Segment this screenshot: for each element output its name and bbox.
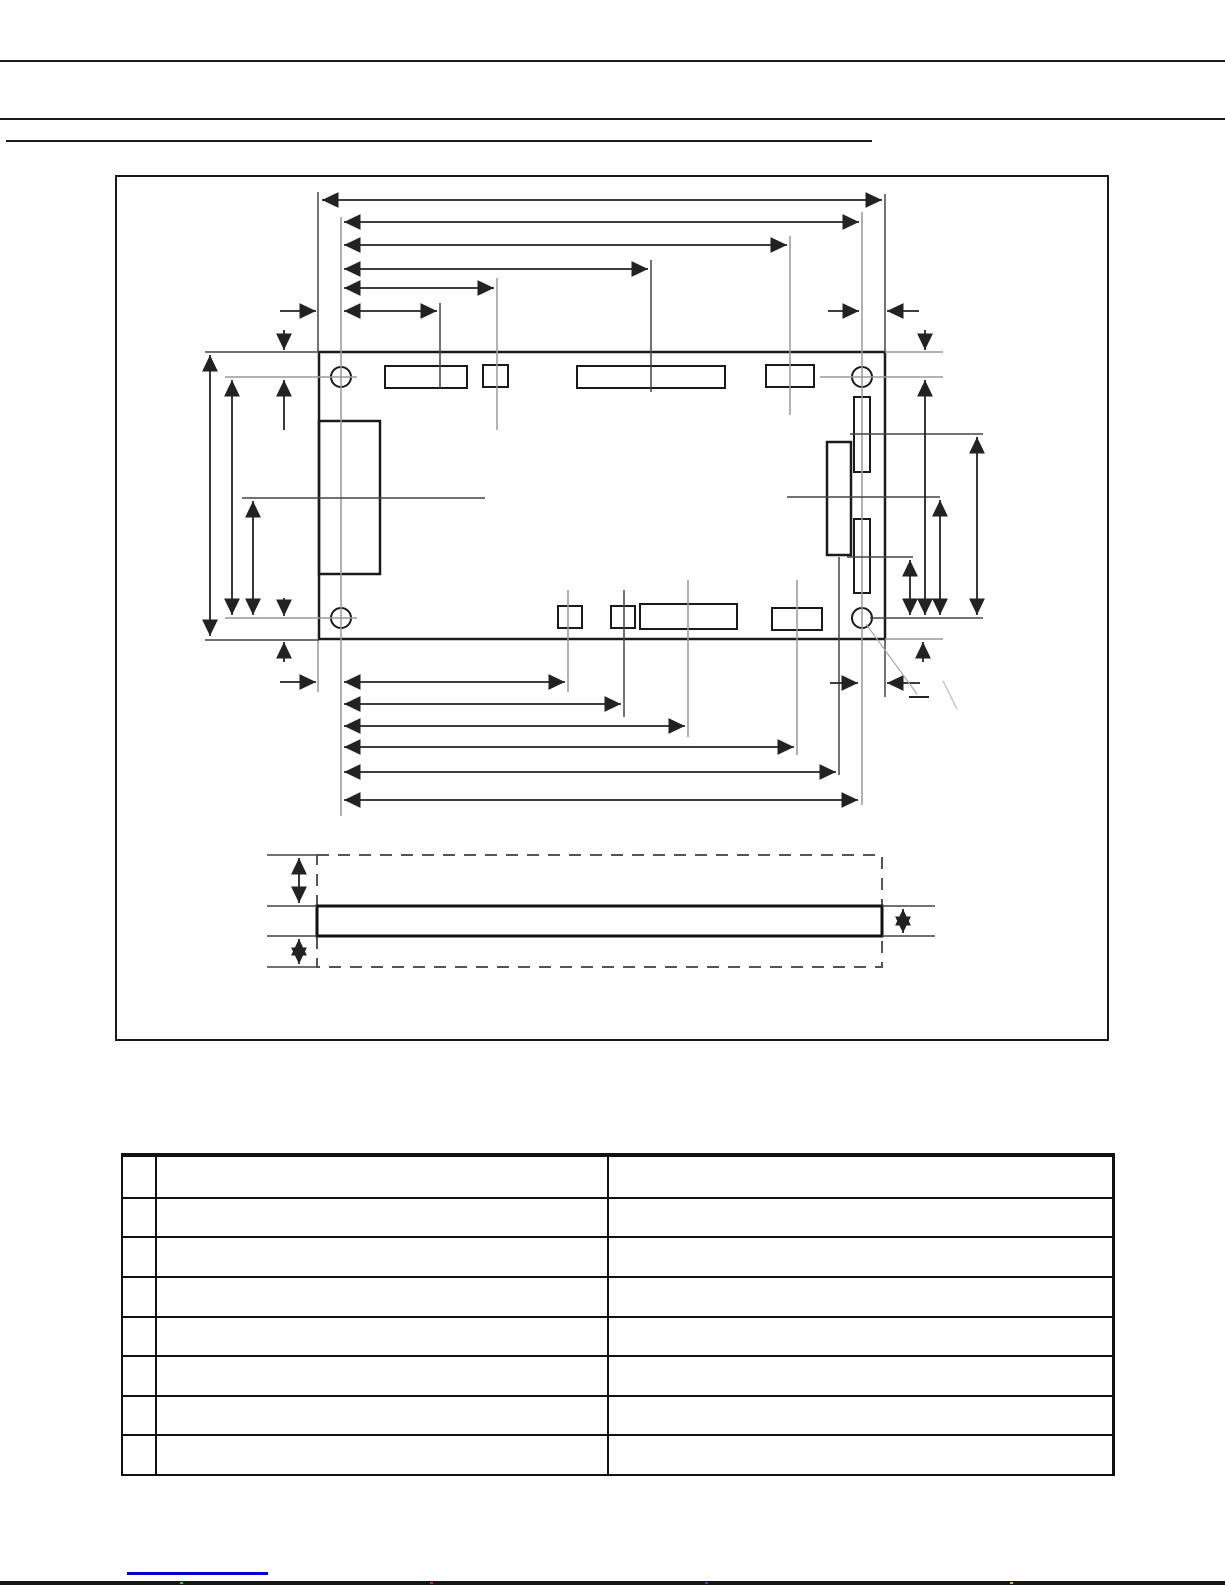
connector-bottom-1	[558, 606, 582, 628]
extension-lines	[205, 192, 983, 775]
table-cell	[155, 1436, 607, 1474]
connector-right-wide	[827, 442, 851, 555]
table-cell	[607, 1357, 1112, 1395]
document-page: { "page": { "background": "#ffffff", "ki…	[0, 0, 1225, 1585]
scan-noise-speck	[705, 1582, 708, 1584]
table-cell	[123, 1357, 155, 1395]
table-row	[123, 1434, 1112, 1474]
table-cell	[607, 1436, 1112, 1474]
pcb-top-view	[319, 352, 885, 639]
scan-noise-speck	[430, 1582, 433, 1584]
scan-noise-speck	[180, 1582, 183, 1584]
spec-table	[121, 1153, 1115, 1476]
table-cell	[123, 1157, 155, 1197]
table-cell	[607, 1318, 1112, 1356]
table-cell	[123, 1436, 155, 1474]
dimension-lines-right	[910, 330, 977, 662]
connector-top-2	[483, 365, 508, 387]
table-row	[123, 1197, 1112, 1237]
scan-artifact-strip	[0, 1581, 1225, 1585]
scan-noise-speck	[1010, 1582, 1013, 1584]
table-row	[123, 1236, 1112, 1276]
board-side-profile	[317, 906, 882, 936]
table-cell	[155, 1318, 607, 1356]
table-cell	[155, 1157, 607, 1197]
table-cell	[155, 1278, 607, 1316]
table-cell	[123, 1397, 155, 1435]
pcb-side-view	[267, 855, 935, 967]
page-header-rules	[0, 61, 1225, 141]
connector-bottom-2	[611, 606, 635, 628]
table-cell	[155, 1238, 607, 1276]
table-cell	[607, 1278, 1112, 1316]
hole-leader-lines	[866, 624, 957, 709]
table-row	[123, 1276, 1112, 1316]
footer-link[interactable]	[127, 1572, 268, 1575]
pcb-outline	[319, 352, 885, 639]
table-cell	[607, 1199, 1112, 1237]
table-cell	[123, 1238, 155, 1276]
table-cell	[123, 1199, 155, 1237]
table-cell	[123, 1278, 155, 1316]
table-row	[123, 1157, 1112, 1197]
table-row	[123, 1395, 1112, 1435]
dimension-lines-left	[210, 330, 284, 662]
table-cell	[607, 1238, 1112, 1276]
table-cell	[123, 1318, 155, 1356]
table-cell	[155, 1397, 607, 1435]
connector-top-1	[385, 366, 467, 388]
dimension-lines-top	[280, 200, 919, 311]
table-cell	[155, 1357, 607, 1395]
dimension-lines-bottom	[280, 682, 920, 800]
table-cell	[607, 1397, 1112, 1435]
table-cell	[607, 1157, 1112, 1197]
table-cell	[155, 1199, 607, 1237]
table-row	[123, 1355, 1112, 1395]
table-row	[123, 1316, 1112, 1356]
